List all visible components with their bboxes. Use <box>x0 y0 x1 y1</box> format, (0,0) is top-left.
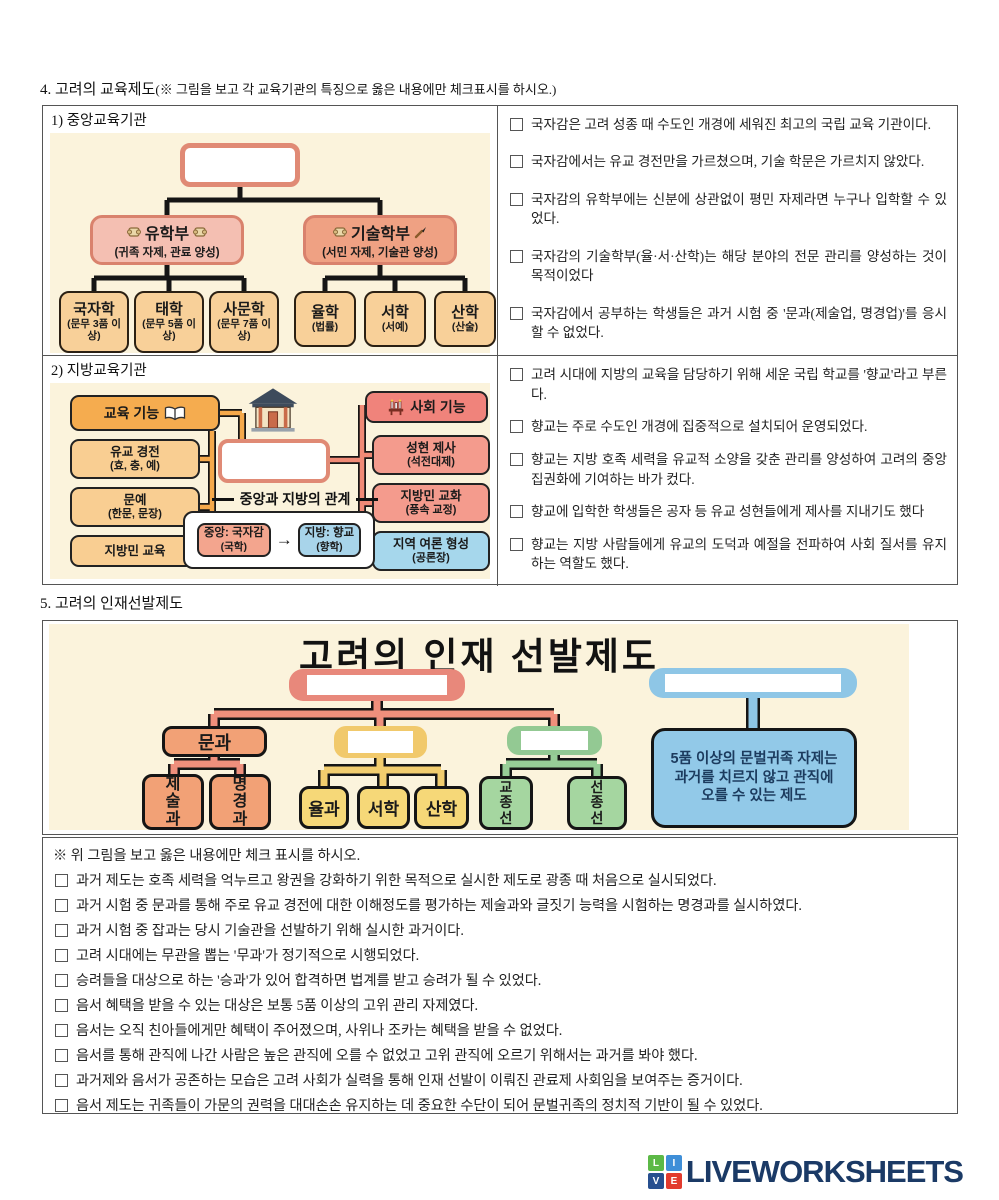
education-table: 1) 중앙교육기관 유학부 (귀족 자제, 관료 양성) <box>42 105 958 585</box>
checkbox[interactable] <box>510 505 523 518</box>
quiz-item-text: 과거 시험 중 잡과는 당시 기술관을 선발하기 위해 실시한 과거이다. <box>76 920 464 940</box>
seohak-box: 서학 <box>357 786 410 829</box>
quiz-checklist: ※ 위 그림을 보고 옳은 내용에만 체크 표시를 하시오. 과거 제도는 호족… <box>42 837 958 1114</box>
checkbox[interactable] <box>55 974 68 987</box>
gyojongseon-label: 교종선 <box>498 780 514 825</box>
school-box-yulhak: 율학 (법률) <box>294 291 356 347</box>
myeonggyeonggwa-label: 명경과 <box>231 776 249 828</box>
jesulgwa-box: 제술과 <box>142 774 204 830</box>
seonjongseon-label: 선종선 <box>589 780 605 825</box>
quiz-item: 과거 시험 중 문과를 통해 주로 유교 경전에 대한 이해정도를 평가하는 제… <box>53 895 947 920</box>
quiz-item-text: 과거 제도는 호족 세력을 억누르고 왕권을 강화하기 위한 목적으로 실시한 … <box>76 870 717 890</box>
logo-squares: L I V E <box>648 1155 682 1189</box>
social-item-box: 지역 여론 형성 (공론장) <box>372 531 490 571</box>
central-edu-cell: 1) 중앙교육기관 유학부 (귀족 자제, 관료 양성) <box>43 106 498 356</box>
quiz-item-text: 음서는 오직 친아들에게만 혜택이 주어졌으며, 사위나 조카는 혜택을 받을 … <box>76 1020 562 1040</box>
social-function-header: 사회 기능 <box>365 391 488 423</box>
school-desc: (서예) <box>382 321 408 333</box>
yulgwa-box: 율과 <box>299 786 349 829</box>
logo-letter-l: L <box>648 1155 664 1171</box>
checkbox[interactable] <box>510 118 523 131</box>
quiz-item-text: 고려 시대에는 무관을 뽑는 '무과'가 정기적으로 시행되었다. <box>76 945 419 965</box>
eumseo-description-box: 5품 이상의 문벌귀족 자제는 과거를 치르지 않고 관직에 오를 수 있는 제… <box>651 728 857 828</box>
technical-dept-title-row: 기술학부 <box>333 220 427 244</box>
edu-item-box: 유교 경전 (효, 충, 예) <box>70 439 200 479</box>
central-edu-diagram: 유학부 (귀족 자제, 관료 양성) 기술학부 (서민 자제, 기술관 양성) … <box>50 133 490 353</box>
hanok-building-icon <box>246 385 300 435</box>
checkbox[interactable] <box>510 453 523 466</box>
quiz-item: 음서는 오직 친아들에게만 혜택이 주어졌으며, 사위나 조카는 혜택을 받을 … <box>53 1020 947 1045</box>
relation-central-line1: 중앙: 국자감 <box>204 527 264 540</box>
statement-text: 향교는 주로 수도인 개경에 집중적으로 설치되어 운영되었다. <box>531 417 947 437</box>
worksheet-page: 4. 고려의 교육제도(※ 그림을 보고 각 교육기관의 특징으로 옳은 내용에… <box>0 0 999 1200</box>
statement-row: 향교는 지방 호족 세력을 유교적 소양을 갖춘 관리를 양성하여 고려의 중앙… <box>508 450 947 489</box>
checkbox[interactable] <box>510 193 523 206</box>
quiz-item: 과거 제도는 호족 세력을 억누르고 왕권을 강화하기 위한 목적으로 실시한 … <box>53 870 947 895</box>
statement-text: 국자감의 유학부에는 신분에 상관없이 평민 자제라면 누구나 입학할 수 있었… <box>531 190 947 229</box>
checkbox[interactable] <box>510 420 523 433</box>
relation-box: 중앙: 국자감 (국학) → 지방: 향교 (향학) <box>183 511 375 569</box>
ritual-table-icon <box>387 398 405 416</box>
school-box-gukjahak: 국자학 (문무 3품 이상) <box>59 291 129 353</box>
school-name: 태학 <box>155 302 183 319</box>
checkbox[interactable] <box>55 1024 68 1037</box>
statement-row: 국자감의 기술학부(율·서·산학)는 해당 분야의 전문 관리를 양성하는 것이… <box>508 247 947 286</box>
checkbox[interactable] <box>55 924 68 937</box>
relation-local-line2: (향학) <box>316 541 342 553</box>
school-name: 율학 <box>311 305 339 322</box>
social-item-title: 지역 여론 형성 <box>393 537 469 551</box>
logo-letter-v: V <box>648 1173 664 1189</box>
quiz-item-text: 과거 시험 중 문과를 통해 주로 유교 경전에 대한 이해정도를 평가하는 제… <box>76 895 802 915</box>
statement-row: 향교는 지방 사람들에게 유교의 도덕과 예절을 전파하여 사회 질서를 유지하… <box>508 535 947 574</box>
quiz-item: 승려들을 대상으로 하는 '승과'가 있어 합격하면 법계를 받고 승려가 될 … <box>53 970 947 995</box>
munkwa-box: 문과 <box>162 726 267 757</box>
social-item-box: 성현 제사 (석전대제) <box>372 435 490 475</box>
checkbox[interactable] <box>510 538 523 551</box>
statement-text: 국자감에서 공부하는 학생들은 과거 시험 중 '문과(제술업, 명경업)'를 … <box>531 304 947 343</box>
technical-dept-box: 기술학부 (서민 자제, 기술관 양성) <box>303 215 457 265</box>
logo-letter-e: E <box>666 1173 682 1189</box>
scroll-icon <box>193 226 207 238</box>
local-edu-cell: 2) 지방교육기관 교육 기능 유교 경전 (효, 충, 예) 문예 <box>43 356 498 586</box>
answer-box-gukjagam[interactable] <box>180 143 300 187</box>
divider <box>356 498 378 501</box>
checkbox[interactable] <box>55 949 68 962</box>
edu-function-label: 교육 기능 <box>104 403 159 423</box>
school-box-taehak: 태학 (문무 5품 이상) <box>134 291 204 353</box>
section4-title: 4. 고려의 교육제도(※ 그림을 보고 각 교육기관의 특징으로 옳은 내용에… <box>40 78 556 99</box>
statement-text: 국자감에서는 유교 경전만을 가르쳤으며, 기술 학문은 가르치지 않았다. <box>531 152 947 172</box>
school-desc: (문무 5품 이상) <box>138 318 200 342</box>
edu-item-title: 문예 <box>123 493 146 507</box>
central-edu-label: 1) 중앙교육기관 <box>43 106 497 131</box>
gyojongseon-box: 교종선 <box>479 776 533 830</box>
confucian-dept-box: 유학부 (귀족 자제, 관료 양성) <box>90 215 244 265</box>
relation-local-box: 지방: 향교 (향학) <box>298 523 361 556</box>
social-item-desc: (석전대제) <box>407 456 455 469</box>
checkbox[interactable] <box>510 368 523 381</box>
technical-dept-subtitle: (서민 자제, 기술관 양성) <box>322 244 438 260</box>
relation-title-row: 중앙과 지방의 관계 <box>170 491 420 507</box>
brush-icon <box>414 226 427 239</box>
jesulgwa-label: 제술과 <box>164 776 182 828</box>
social-item-desc: (공론장) <box>412 552 450 565</box>
statement-text: 고려 시대에 지방의 교육을 담당하기 위해 세운 국립 학교를 '향교'라고 … <box>531 365 947 404</box>
confucian-dept-title: 유학부 <box>145 220 189 244</box>
local-edu-statements: 고려 시대에 지방의 교육을 담당하기 위해 세운 국립 학교를 '향교'라고 … <box>498 356 957 586</box>
technical-dept-title: 기술학부 <box>351 220 410 244</box>
statement-text: 향교는 지방 호족 세력을 유교적 소양을 갖춘 관리를 양성하여 고려의 중앙… <box>531 450 947 489</box>
section4-title-paren: (※ 그림을 보고 각 교육기관의 특징으로 옳은 내용에만 체크표시를 하시오… <box>155 82 556 97</box>
school-box-sanhak: 산학 (산술) <box>434 291 496 347</box>
quiz-item: 음서 제도는 귀족들이 가문의 권력을 대대손손 유지하는 데 중요한 수단이 … <box>53 1095 947 1120</box>
answer-box-japkwa[interactable] <box>334 726 427 758</box>
checkbox[interactable] <box>55 899 68 912</box>
checkbox[interactable] <box>510 250 523 263</box>
statement-row: 국자감에서 공부하는 학생들은 과거 시험 중 '문과(제술업, 명경업)'를 … <box>508 304 947 343</box>
local-edu-diagram: 교육 기능 유교 경전 (효, 충, 예) 문예 (한문, 문장) 지방민 교육 <box>50 383 490 579</box>
school-name: 사문학 <box>223 302 264 319</box>
school-box-seohak: 서학 (서예) <box>364 291 426 347</box>
school-desc: (법률) <box>312 321 338 333</box>
quiz-item: 과거제와 음서가 공존하는 모습은 고려 사회가 실력을 통해 인재 선발이 이… <box>53 1070 947 1095</box>
answer-box-hyanggyo[interactable] <box>218 439 330 483</box>
edu-item-desc: (한문, 문장) <box>108 508 162 521</box>
statement-text: 국자감의 기술학부(율·서·산학)는 해당 분야의 전문 관리를 양성하는 것이… <box>531 247 947 286</box>
central-edu-statements: 국자감은 고려 성종 때 수도인 개경에 세워진 최고의 국립 교육 기관이다.… <box>498 106 957 356</box>
quiz-item-text: 승려들을 대상으로 하는 '승과'가 있어 합격하면 법계를 받고 승려가 될 … <box>76 970 541 990</box>
scroll-icon <box>127 226 141 238</box>
seonjongseon-box: 선종선 <box>567 776 627 830</box>
checkbox[interactable] <box>55 1099 68 1112</box>
quiz-item-text: 음서 제도는 귀족들이 가문의 권력을 대대손손 유지하는 데 중요한 수단이 … <box>76 1095 763 1115</box>
edu-item-title: 유교 경전 <box>110 445 159 459</box>
section4-title-main: 4. 고려의 교육제도 <box>40 82 155 98</box>
school-desc: (문무 7품 이상) <box>213 318 275 342</box>
checkbox[interactable] <box>510 307 523 320</box>
statement-row: 향교에 입학한 학생들은 공자 등 유교 성현들에게 제사를 지내기도 했다 <box>508 502 947 522</box>
liveworksheets-logo[interactable]: L I V E LIVEWORKSHEETS <box>648 1154 963 1190</box>
relation-local-line1: 지방: 향교 <box>305 527 354 540</box>
statement-text: 향교는 지방 사람들에게 유교의 도덕과 예절을 전파하여 사회 질서를 유지하… <box>531 535 947 574</box>
relation-title: 중앙과 지방의 관계 <box>240 489 351 509</box>
school-name: 산학 <box>451 305 479 322</box>
statement-text: 국자감은 고려 성종 때 수도인 개경에 세워진 최고의 국립 교육 기관이다. <box>531 115 947 135</box>
edu-item-desc: (효, 충, 예) <box>110 460 160 473</box>
answer-box-gwageo[interactable] <box>289 669 465 701</box>
confucian-dept-title-row: 유학부 <box>127 220 207 244</box>
quiz-item: 고려 시대에는 무관을 뽑는 '무과'가 정기적으로 시행되었다. <box>53 945 947 970</box>
sanhak-box: 산학 <box>414 786 469 829</box>
statement-text: 향교에 입학한 학생들은 공자 등 유교 성현들에게 제사를 지내기도 했다 <box>531 502 947 522</box>
school-name: 국자학 <box>73 302 114 319</box>
quiz-item-text: 음서를 통해 관직에 나간 사람은 높은 관직에 오를 수 없었고 고위 관직에… <box>76 1045 698 1065</box>
open-book-icon <box>164 406 186 421</box>
statement-row: 국자감의 유학부에는 신분에 상관없이 평민 자제라면 누구나 입학할 수 있었… <box>508 190 947 229</box>
school-box-samunhak: 사문학 (문무 7품 이상) <box>209 291 279 353</box>
school-desc: (산술) <box>452 321 478 333</box>
relation-central-box: 중앙: 국자감 (국학) <box>197 523 271 556</box>
myeonggyeonggwa-box: 명경과 <box>209 774 271 830</box>
selection-diagram-box: 고려의 인재 선발제도 문과 제술과 명경과 율과 서학 산학 교종선 <box>42 620 958 835</box>
school-desc: (문무 3품 이상) <box>63 318 125 342</box>
local-edu-label: 2) 지방교육기관 <box>43 356 497 381</box>
edu-item-box: 지방민 교육 <box>70 535 200 567</box>
checkbox[interactable] <box>510 155 523 168</box>
checkbox[interactable] <box>55 1049 68 1062</box>
brand-wordmark: LIVEWORKSHEETS <box>686 1154 963 1190</box>
confucian-dept-subtitle: (귀족 자제, 관료 양성) <box>114 244 219 260</box>
statement-row: 국자감에서는 유교 경전만을 가르쳤으며, 기술 학문은 가르치지 않았다. <box>508 152 947 172</box>
arrow-right-icon: → <box>276 530 293 550</box>
statement-row: 국자감은 고려 성종 때 수도인 개경에 세워진 최고의 국립 교육 기관이다. <box>508 115 947 135</box>
logo-letter-i: I <box>666 1155 682 1171</box>
quiz-item: 과거 시험 중 잡과는 당시 기술관을 선발하기 위해 실시한 과거이다. <box>53 920 947 945</box>
social-function-label: 사회 기능 <box>410 397 465 417</box>
scroll-icon <box>333 226 347 238</box>
quiz-item-text: 과거제와 음서가 공존하는 모습은 고려 사회가 실력을 통해 인재 선발이 이… <box>76 1070 743 1090</box>
quiz-item-text: 음서 혜택을 받을 수 있는 대상은 보통 5품 이상의 고위 관리 자제였다. <box>76 995 478 1015</box>
edu-function-header: 교육 기능 <box>70 395 220 431</box>
answer-box-seunggwa[interactable] <box>507 726 602 755</box>
relation-central-line2: (국학) <box>221 541 247 553</box>
statement-row: 고려 시대에 지방의 교육을 담당하기 위해 세운 국립 학교를 '향교'라고 … <box>508 365 947 404</box>
edu-item-title: 지방민 교육 <box>105 544 166 558</box>
section5-title: 5. 고려의 인재선발제도 <box>40 592 183 613</box>
quiz-item: 음서를 통해 관직에 나간 사람은 높은 관직에 오를 수 없었고 고위 관직에… <box>53 1045 947 1070</box>
divider <box>212 498 234 501</box>
checkbox[interactable] <box>55 1074 68 1087</box>
quiz-header: ※ 위 그림을 보고 옳은 내용에만 체크 표시를 하시오. <box>53 845 947 870</box>
statement-row: 향교는 주로 수도인 개경에 집중적으로 설치되어 운영되었다. <box>508 417 947 437</box>
school-name: 서학 <box>381 305 409 322</box>
quiz-item: 음서 혜택을 받을 수 있는 대상은 보통 5품 이상의 고위 관리 자제였다. <box>53 995 947 1020</box>
answer-box-eumseo[interactable] <box>649 668 857 698</box>
selection-diagram: 고려의 인재 선발제도 문과 제술과 명경과 율과 서학 산학 교종선 <box>49 624 909 830</box>
social-item-title: 성현 제사 <box>406 441 455 455</box>
checkbox[interactable] <box>55 999 68 1012</box>
checkbox[interactable] <box>55 874 68 887</box>
